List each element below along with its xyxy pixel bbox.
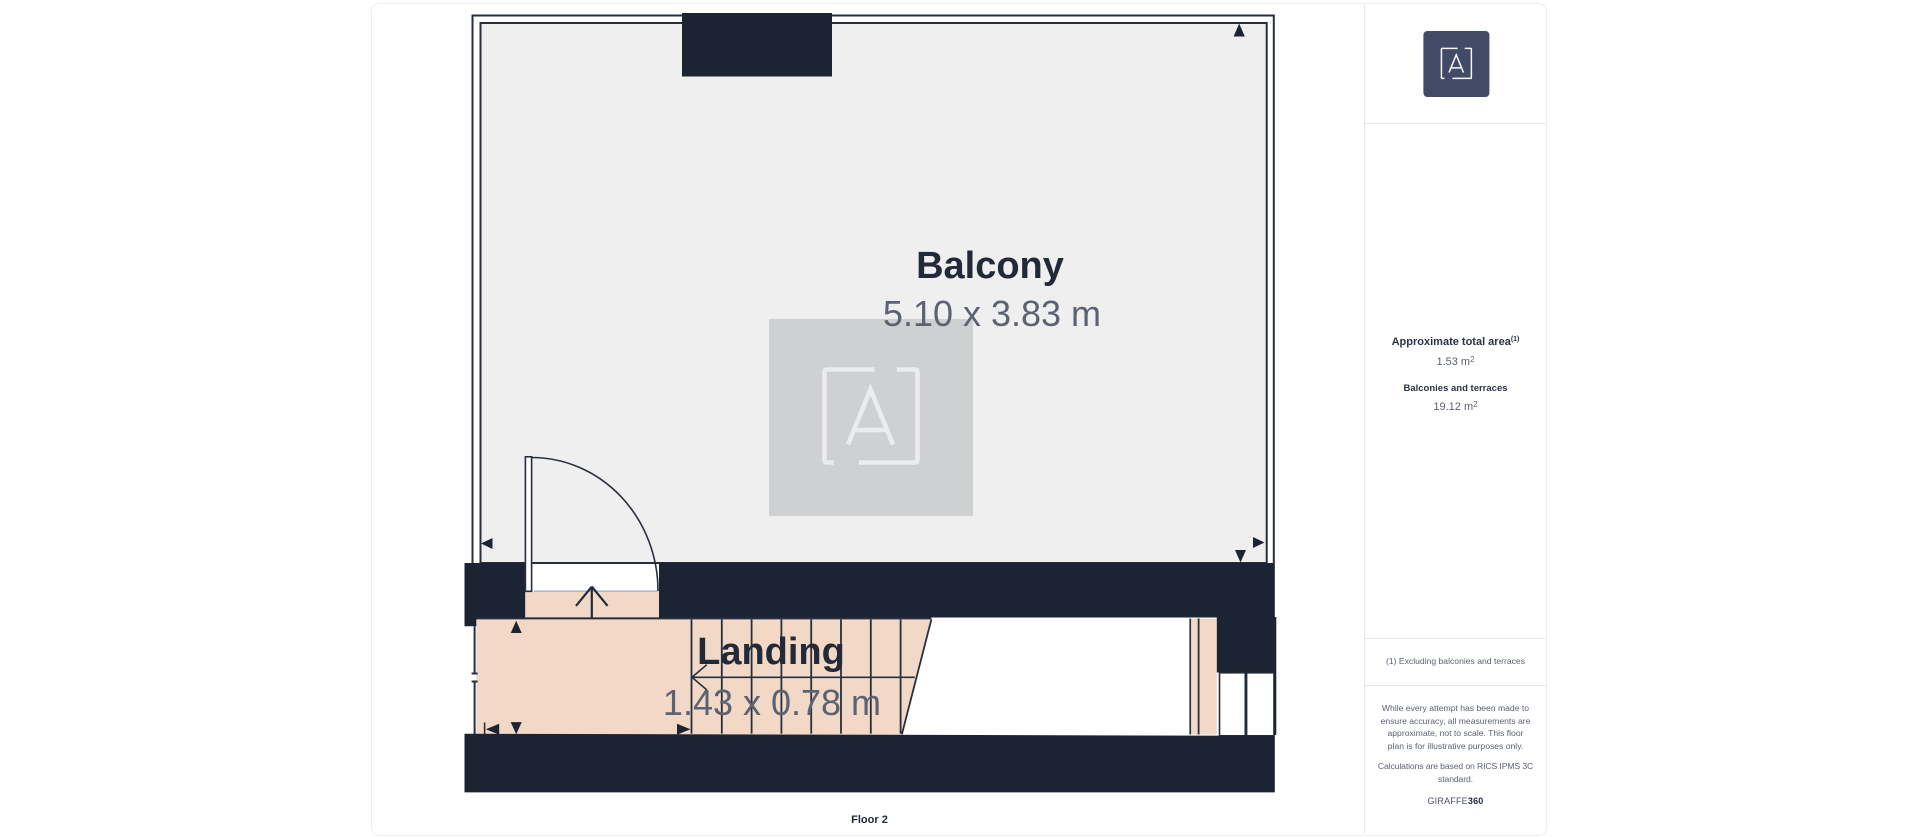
svg-text:Landing: Landing bbox=[697, 631, 845, 673]
svg-text:5.10 x 3.83 m: 5.10 x 3.83 m bbox=[883, 293, 1101, 334]
svg-text:Floor 2: Floor 2 bbox=[851, 814, 888, 826]
svg-text:Balcony: Balcony bbox=[916, 245, 1064, 287]
svg-text:1.43 x 0.78 m: 1.43 x 0.78 m bbox=[663, 682, 881, 723]
